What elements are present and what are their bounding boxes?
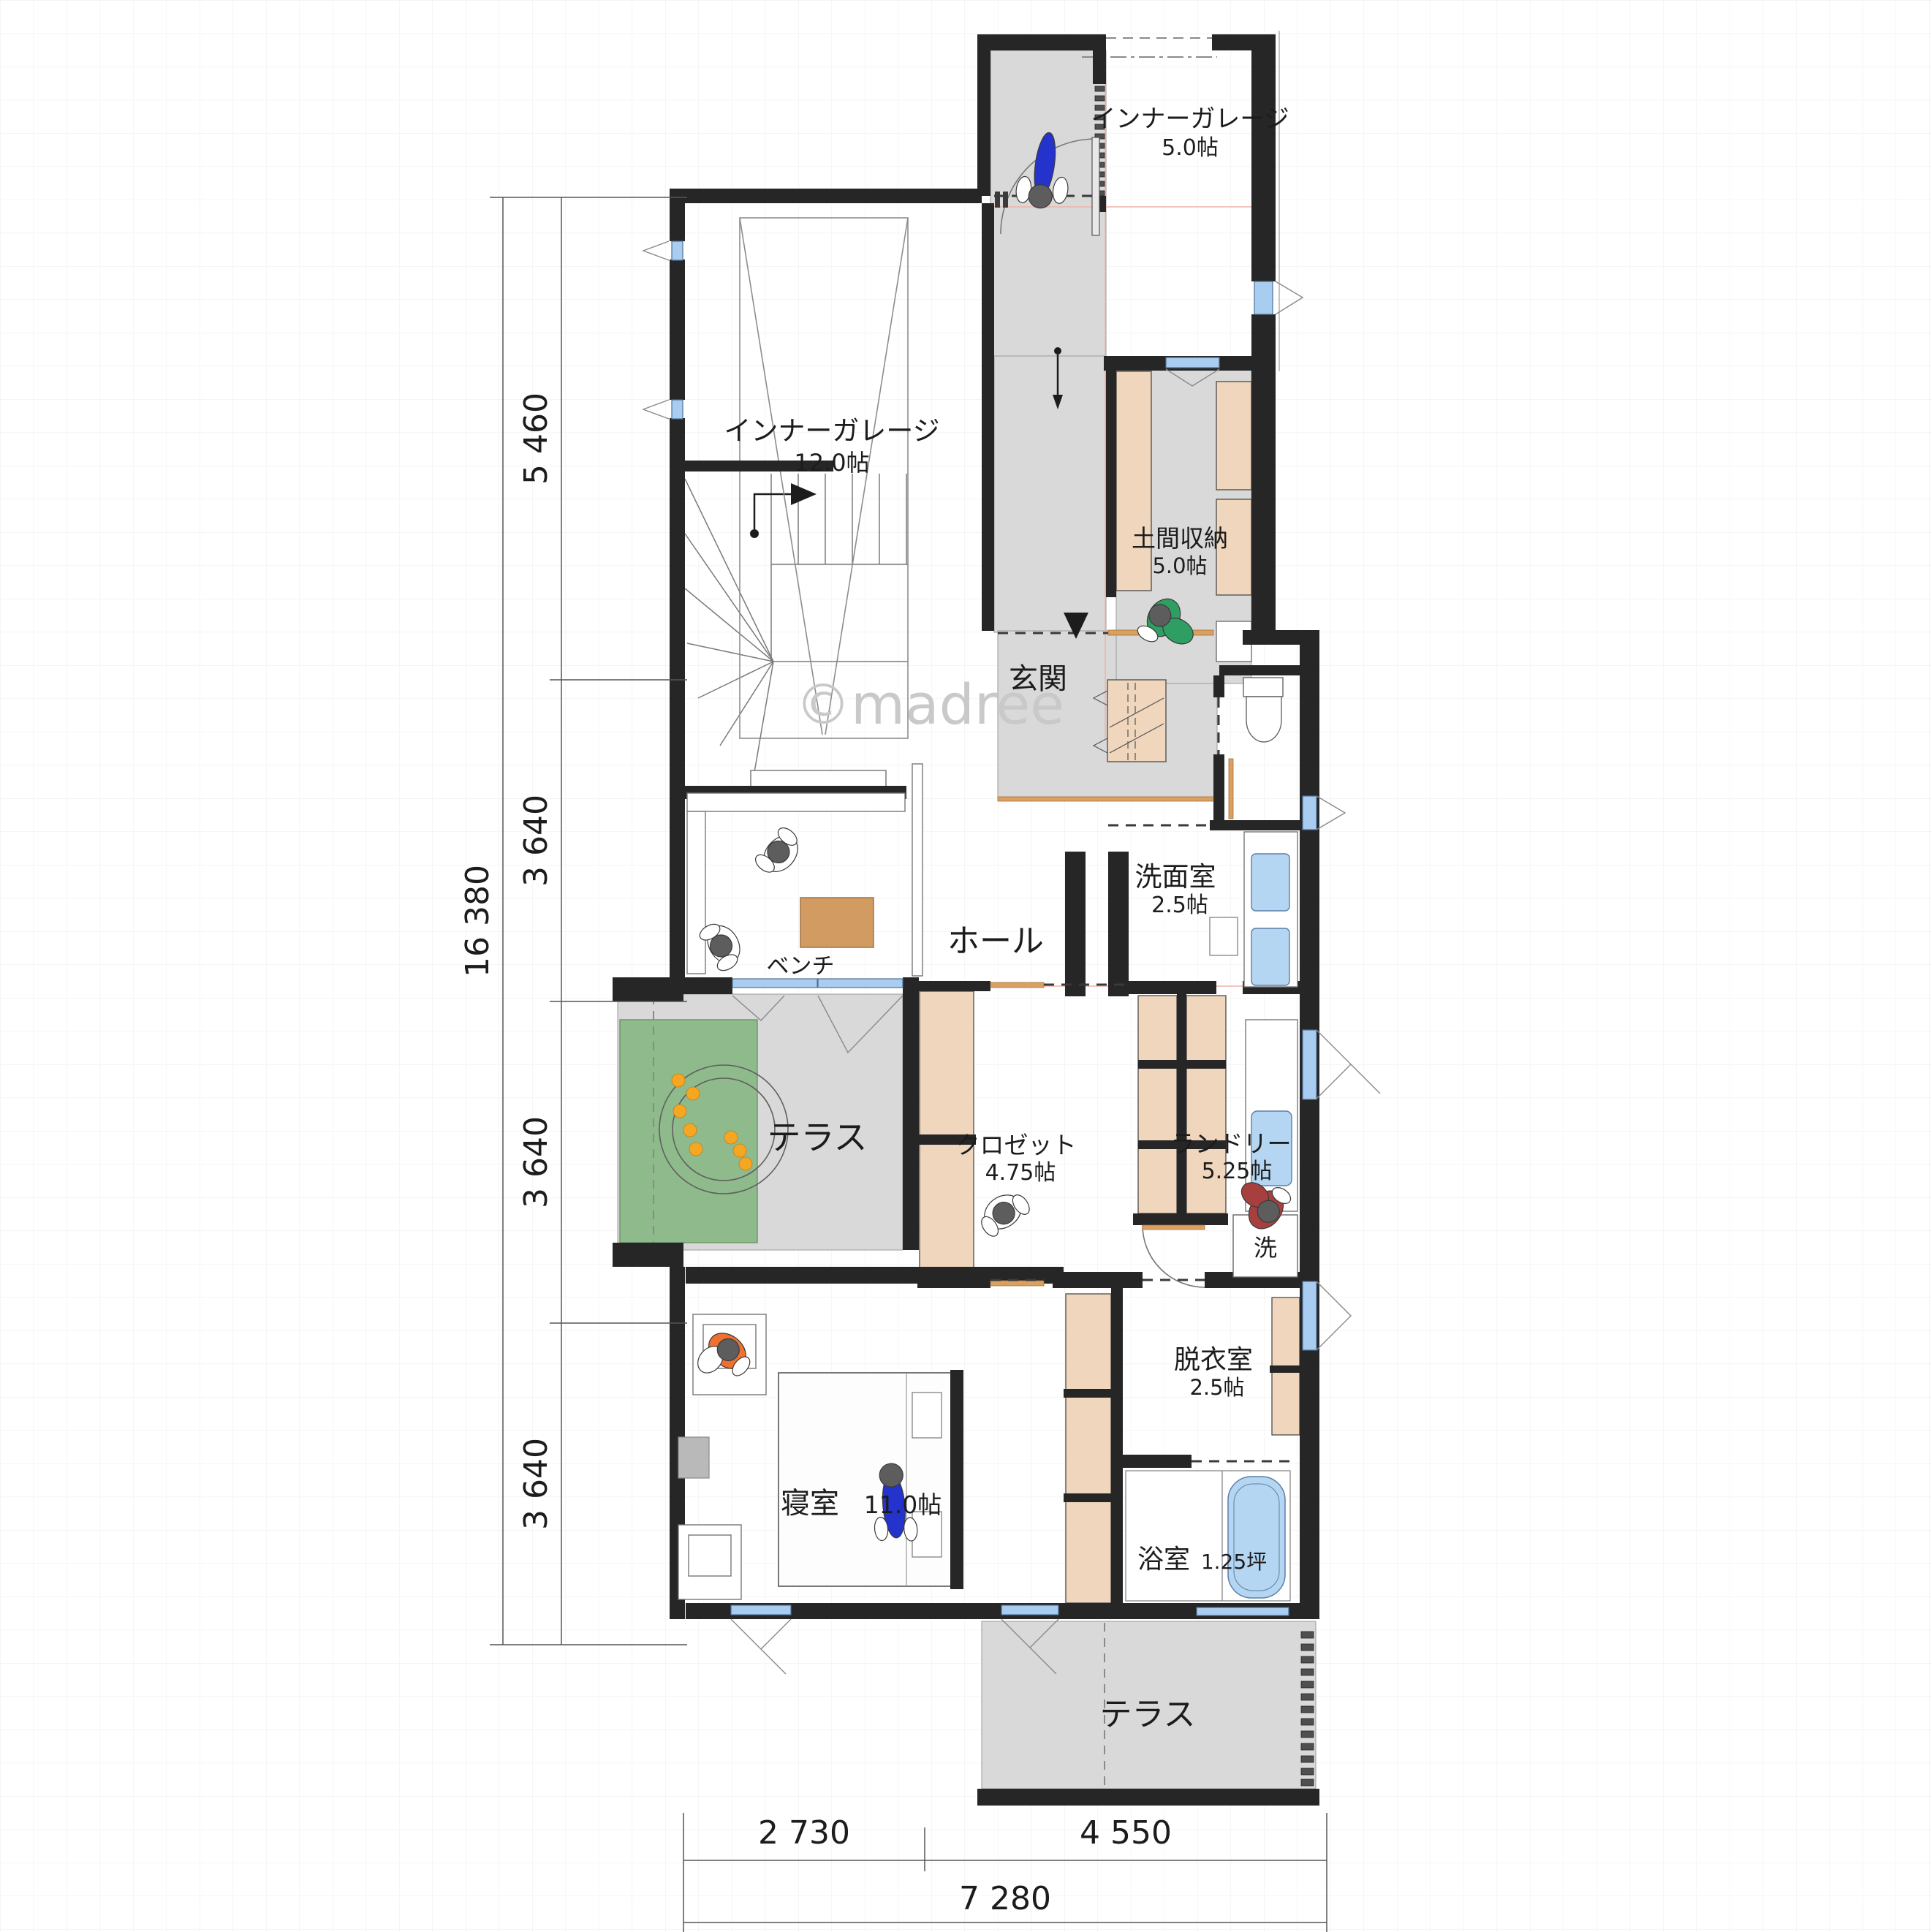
- label-doma-name: 土間収納: [1132, 524, 1228, 553]
- floor-plan-canvas: インナーガレージ 5.0帖 インナーガレージ 12.0帖 土間収納 5.0帖 玄…: [0, 0, 1932, 1932]
- closet-door-track: [1143, 1225, 1205, 1230]
- label-washroom-name: 洗面室: [1135, 861, 1216, 893]
- dim-bottom-total: 7 280: [959, 1880, 1051, 1917]
- bedroom-window-b: [1001, 1605, 1058, 1615]
- label-bedroom-size: 11.0帖: [864, 1490, 942, 1519]
- label-garage12-name: インナーガレージ: [724, 415, 939, 447]
- garage-window-1: [672, 241, 683, 260]
- label-closet-size: 4.75帖: [985, 1160, 1056, 1186]
- label-garage5-size: 5.0帖: [1162, 135, 1219, 161]
- doma-shelf-left: [1116, 371, 1151, 591]
- label-bath-size: 1.25坪: [1201, 1550, 1267, 1574]
- dim-left-4: 3 640: [518, 1438, 555, 1530]
- right-window-toilet: [1303, 796, 1317, 830]
- label-bedroom-name: 寝室: [781, 1487, 839, 1520]
- bedroom-side-table: [678, 1437, 709, 1478]
- bedroom-closet-shelf: [1066, 1294, 1111, 1603]
- bench-window-b: [818, 979, 903, 988]
- bench-window-a: [732, 979, 817, 988]
- hall-table: [800, 898, 874, 947]
- closet-shelf-center-a: [1138, 996, 1177, 1213]
- dim-left-3: 3 640: [518, 1116, 555, 1208]
- bathtub: [1126, 1471, 1290, 1601]
- bed: [779, 1370, 963, 1589]
- label-terrace-mid: テラス: [767, 1118, 867, 1157]
- garage-approach-floor-lower: [994, 356, 1106, 632]
- dim-left-2: 3 640: [518, 795, 555, 887]
- right-window-dressing: [1303, 1281, 1317, 1350]
- label-dressing-size: 2.5帖: [1189, 1375, 1244, 1400]
- label-closet-name: クロゼット: [956, 1131, 1077, 1159]
- dim-bottom-2: 4 550: [1080, 1814, 1172, 1852]
- garage5-door-leaf: [1092, 137, 1099, 235]
- label-laundry-size: 5.25帖: [1202, 1159, 1273, 1184]
- toilet: [1243, 678, 1283, 742]
- garage-window-2: [672, 400, 683, 419]
- dim-left-total: 16 380: [459, 865, 496, 977]
- label-bench: ベンチ: [767, 953, 835, 980]
- label-washroom-size: 2.5帖: [1151, 893, 1208, 918]
- floor-plan-page: インナーガレージ 5.0帖 インナーガレージ 12.0帖 土間収納 5.0帖 玄…: [0, 0, 1932, 1932]
- genkan-step-edge: [998, 797, 1213, 801]
- label-washer: 洗: [1254, 1234, 1277, 1262]
- label-terrace-bottom: テラス: [1099, 1696, 1195, 1733]
- right-window-washroom: [1303, 1030, 1317, 1099]
- closet-slide-door: [990, 982, 1044, 988]
- toilet-pocket-door: [1229, 759, 1233, 819]
- label-laundry-name: ランドリー: [1171, 1129, 1292, 1158]
- doma-shelf-right-upper: [1216, 382, 1251, 490]
- bath-window: [1197, 1607, 1289, 1615]
- dim-bottom-1: 2 730: [758, 1814, 850, 1852]
- label-doma-size: 5.0帖: [1152, 553, 1207, 578]
- label-dressing-name: 脱衣室: [1174, 1345, 1253, 1375]
- garage5-window: [1254, 281, 1273, 314]
- grid-background: [0, 0, 1932, 1932]
- doma-window: [1166, 357, 1219, 368]
- label-hall: ホール: [947, 923, 1044, 960]
- dim-left-1: 5 460: [518, 393, 555, 485]
- label-garage12-size: 12.0帖: [794, 449, 869, 477]
- closet-slide-door-2: [990, 1281, 1044, 1286]
- bedroom-window-a: [731, 1605, 791, 1615]
- label-bath-name: 浴室: [1137, 1545, 1190, 1575]
- label-garage5-name: インナーガレージ: [1091, 105, 1289, 134]
- watermark: ©madree: [795, 672, 1064, 737]
